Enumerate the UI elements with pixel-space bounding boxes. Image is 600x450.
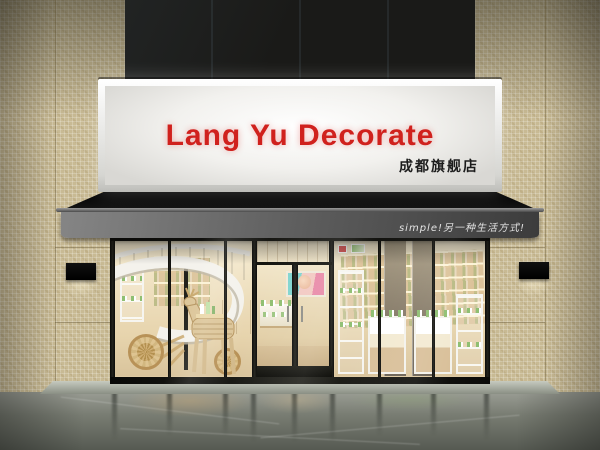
awning-slogan-text: simple!另一种生活方式! — [399, 219, 525, 234]
wall-sconce-left — [66, 263, 96, 280]
deer-sculpture — [176, 286, 248, 378]
door-kick-rail — [257, 366, 332, 377]
storefront-scene: simple!另一种生活方式! Lang Yu Decorate 成都旗舰店 — [0, 0, 600, 450]
sign-subtitle-text: 成都旗舰店 — [399, 156, 479, 176]
products-cabinet-1 — [371, 310, 403, 317]
products-etagere-left2 — [340, 322, 362, 327]
tile-seam-left-vertical — [55, 0, 56, 394]
door-handle-left — [287, 306, 289, 322]
products-display-table2 — [263, 312, 289, 317]
tile-seam-right-vertical — [545, 0, 546, 394]
wooden-wheel-large — [128, 334, 164, 370]
floor-vignette — [0, 392, 600, 450]
lightbox-sign-panel: Lang Yu Decorate 成都旗舰店 — [105, 86, 495, 185]
awning-shadow-on-glass — [110, 238, 490, 264]
lightbox-sign: Lang Yu Decorate 成都旗舰店 — [98, 79, 502, 192]
frame-bottom-rail — [110, 377, 490, 384]
storefront-glazing — [110, 238, 490, 384]
wall-sconce-right — [519, 262, 549, 279]
products-etagere-right — [458, 308, 481, 313]
door-handle-right — [301, 306, 303, 322]
marble-floor — [0, 392, 600, 450]
etagere-right — [456, 294, 483, 374]
beauty-poster-face — [298, 275, 311, 289]
awning-valance: simple!另一种生活方式! — [61, 212, 539, 238]
display-cabinet-1 — [368, 316, 406, 374]
products-etagere-right2 — [458, 342, 481, 347]
sign-title-text: Lang Yu Decorate — [166, 119, 435, 153]
products-etagere-left — [340, 288, 362, 293]
